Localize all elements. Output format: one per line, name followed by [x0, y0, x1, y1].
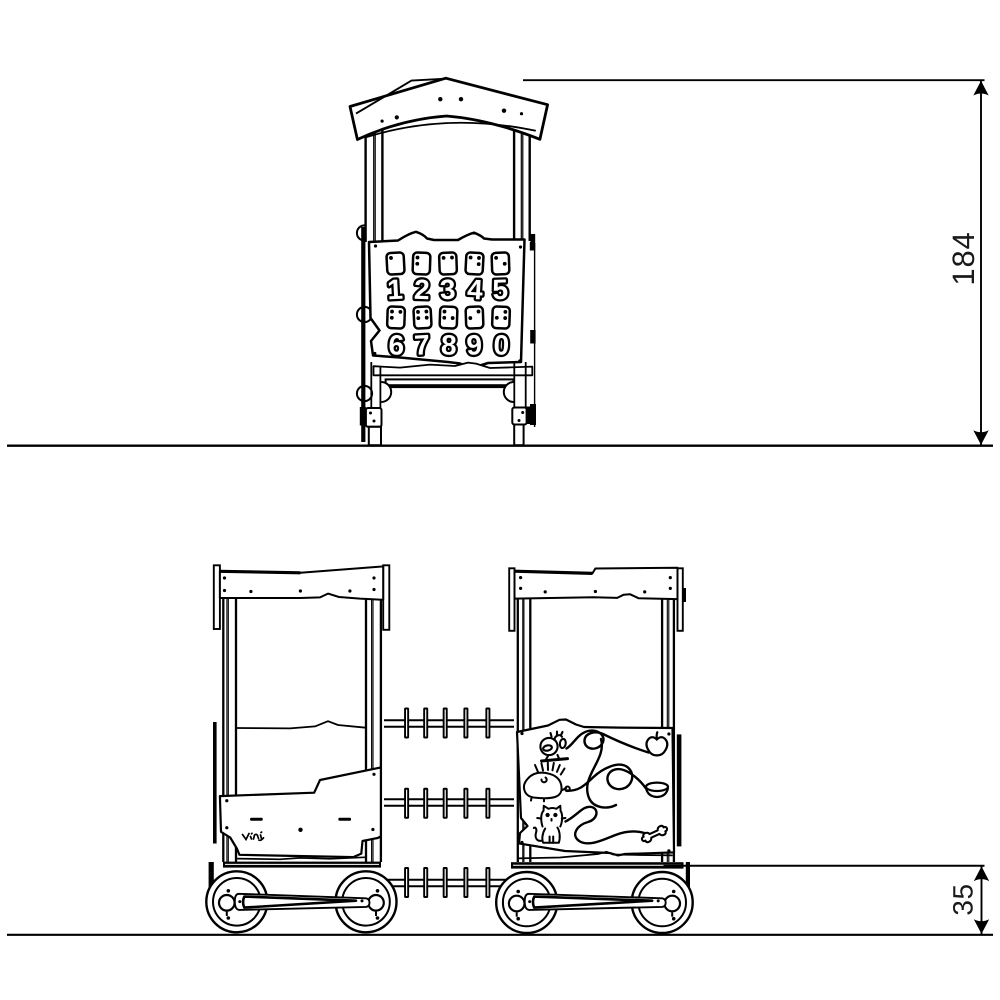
svg-text:7: 7 — [413, 329, 430, 361]
svg-text:1: 1 — [386, 274, 403, 306]
svg-text:3: 3 — [439, 274, 456, 306]
svg-text:5: 5 — [492, 274, 509, 306]
svg-text:9: 9 — [466, 329, 483, 361]
svg-text:8: 8 — [441, 329, 458, 361]
svg-text:35: 35 — [948, 883, 979, 915]
svg-text:6: 6 — [388, 329, 405, 361]
svg-text:2: 2 — [414, 274, 431, 306]
svg-text:4: 4 — [466, 274, 484, 306]
svg-text:184: 184 — [946, 231, 981, 285]
svg-text:0: 0 — [493, 329, 510, 361]
